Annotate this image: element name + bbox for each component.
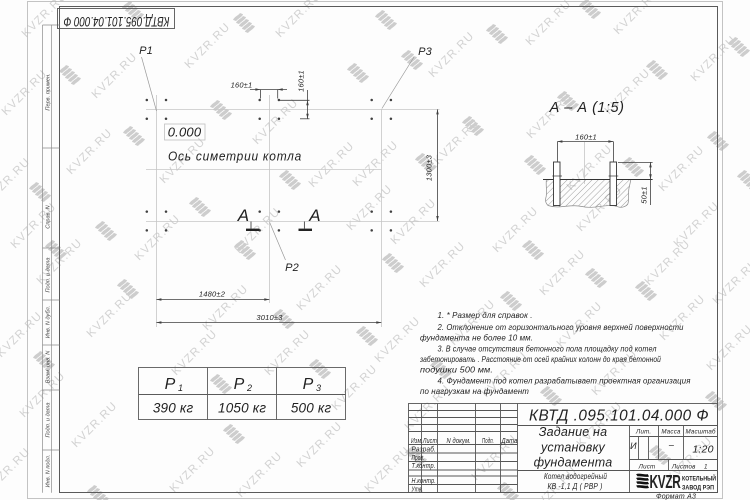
svg-text:Дата: Дата [501,438,518,445]
svg-text:Ось симетрии котла: Ось симетрии котла [168,150,302,164]
svg-text:1:20: 1:20 [692,444,713,456]
svg-text:установку: установку [540,441,606,455]
svg-text:KVZR.RU: KVZR.RU [427,30,477,80]
svg-text:KVZR.RU: KVZR.RU [65,127,115,177]
svg-text:КВ -1,1 Д ( РВР ): КВ -1,1 Д ( РВР ) [548,482,603,491]
svg-text:Подп. и дата: Подп. и дата [46,402,52,437]
svg-text:50±1: 50±1 [640,186,649,203]
svg-text:А: А [237,206,250,225]
svg-text:390 кг: 390 кг [153,401,194,416]
svg-text:1300±3: 1300±3 [425,154,434,181]
svg-text:P1: P1 [139,45,153,57]
svg-text:забетонировать . Расстояние о: забетонировать . Расстояние от осей край… [419,354,661,364]
svg-text:подушки 500 мм.: подушки 500 мм. [420,365,493,375]
svg-text:KVZR.RU: KVZR.RU [18,370,68,420]
svg-text:KVZR.RU: KVZR.RU [491,205,541,255]
svg-text:1: 1 [178,383,183,393]
svg-text:KVZR: KVZR [650,471,681,492]
svg-text:3: 3 [316,383,321,393]
svg-text:KVZR.RU: KVZR.RU [330,363,380,413]
svg-text:1480±2: 1480±2 [199,290,226,299]
svg-text:160±1: 160±1 [575,132,597,141]
svg-text:KVZR.RU: KVZR.RU [251,97,301,147]
svg-text:KVZR.RU: KVZR.RU [307,140,357,190]
svg-text:KVZR.RU: KVZR.RU [70,400,120,450]
svg-text:КВТД .095.101.04.000 Ф: КВТД .095.101.04.000 Ф [529,408,709,425]
svg-text:KVZR.RU: KVZR.RU [183,21,233,71]
svg-text:Подп.: Подп. [482,437,494,445]
svg-text:Разраб.: Разраб. [412,446,437,454]
svg-text:–: – [668,440,675,450]
svg-text:KVZR.RU: KVZR.RU [133,213,183,263]
svg-text:Масса: Масса [661,429,681,436]
svg-text:KVZR.RU: KVZR.RU [705,323,750,373]
svg-text:KVZR.RU: KVZR.RU [711,257,750,307]
svg-text:1: 1 [704,464,708,471]
svg-text:по нагрузкам на фундамент: по нагрузкам на фундамент [420,386,529,396]
svg-text:Задание на: Задание на [539,425,608,439]
svg-text:P: P [165,376,176,393]
svg-text:KVZR.RU: KVZR.RU [295,263,345,313]
svg-text:KVZR.RU: KVZR.RU [345,183,395,233]
svg-text:KVZR.RU: KVZR.RU [538,248,588,298]
svg-text:фундамента: фундамента [534,456,613,470]
svg-text:160±1: 160±1 [231,80,253,89]
svg-text:Перв. примен.: Перв. примен. [46,73,52,110]
svg-text:Подп. и дата: Подп. и дата [46,257,52,292]
svg-text:Справ. N: Справ. N [46,204,52,228]
svg-text:KVZR.RU: KVZR.RU [418,240,468,290]
svg-text:160±1: 160±1 [297,70,306,92]
svg-text:0.000: 0.000 [168,125,202,140]
svg-text:3010±3: 3010±3 [256,313,283,322]
svg-text:KVZR.RU: KVZR.RU [643,238,693,288]
svg-text:KVZR.RU: KVZR.RU [295,420,345,470]
svg-text:Утв.: Утв. [411,486,423,493]
svg-text:Лит.: Лит. [635,429,651,436]
svg-text:KVZR.RU: KVZR.RU [274,0,324,40]
svg-text:4. Фундамент под котел разраб: 4. Фундамент под котел разрабатывает про… [438,375,691,385]
svg-text:Взам. инв. N: Взам. инв. N [46,350,52,384]
svg-text:КОТЕЛЬНЫЙ: КОТЕЛЬНЫЙ [682,474,716,483]
svg-text:1050 кг: 1050 кг [218,401,266,416]
svg-text:Инв. N дубл.: Инв. N дубл. [46,306,52,338]
svg-text:KVZR.RU: KVZR.RU [524,0,574,48]
svg-text:KVZR.RU: KVZR.RU [168,445,218,495]
svg-text:P2: P2 [285,262,299,274]
svg-text:А – А (1:5): А – А (1:5) [549,100,625,116]
svg-text:Масштаб: Масштаб [685,429,716,436]
svg-text:KVZR.RU: KVZR.RU [657,144,707,194]
svg-text:KVZR.RU: KVZR.RU [90,51,140,101]
svg-text:N докум.: N докум. [446,437,471,445]
svg-text:КВТД.095.101.04.000 Ф: КВТД.095.101.04.000 Ф [63,14,169,29]
svg-text:1. * Размер для справок .: 1. * Размер для справок . [438,310,533,320]
svg-text:P: P [303,376,314,393]
svg-text:2: 2 [246,383,252,393]
svg-text:А: А [308,206,321,225]
svg-text:Инв. N подл.: Инв. N подл. [46,455,52,488]
svg-text:ЗАВОД РЭП: ЗАВОД РЭП [682,485,714,492]
svg-text:KVZR.RU: KVZR.RU [351,139,401,189]
svg-text:500 кг: 500 кг [291,401,332,416]
svg-text:3. В случае отсутствия бетонн: 3. В случае отсутствия бетонного пола пл… [438,343,657,353]
svg-text:Т.контр.: Т.контр. [412,463,436,470]
svg-text:фундамента не более 10 мм.: фундамента не более 10 мм. [420,333,533,343]
svg-text:Котел водогрейный: Котел водогрейный [544,472,607,481]
svg-text:Лист: Лист [638,464,656,471]
svg-text:P: P [234,376,245,393]
svg-text:Формат А3: Формат А3 [656,493,696,500]
svg-text:И: И [630,441,637,451]
svg-text:2. Отклонение от горизонтальн: 2. Отклонение от горизонтального уровня … [437,322,684,332]
svg-text:Н.контр.: Н.контр. [412,478,437,485]
svg-text:Листов: Листов [671,464,696,471]
svg-text:KVZR.RU: KVZR.RU [612,0,662,37]
svg-text:KVZR.RU: KVZR.RU [0,310,45,360]
svg-text:KVZR.RU: KVZR.RU [263,328,313,378]
svg-text:KVZR.RU: KVZR.RU [0,156,33,206]
svg-text:KVZR.RU: KVZR.RU [0,446,33,496]
svg-text:P3: P3 [418,46,433,58]
svg-text:KVZR.RU: KVZR.RU [85,290,135,340]
svg-text:Пров.: Пров. [412,455,425,462]
svg-text:KVZR.RU: KVZR.RU [658,293,708,343]
svg-text:KVZR.RU: KVZR.RU [170,328,220,378]
svg-text:Изм.Лист: Изм.Лист [411,438,437,445]
